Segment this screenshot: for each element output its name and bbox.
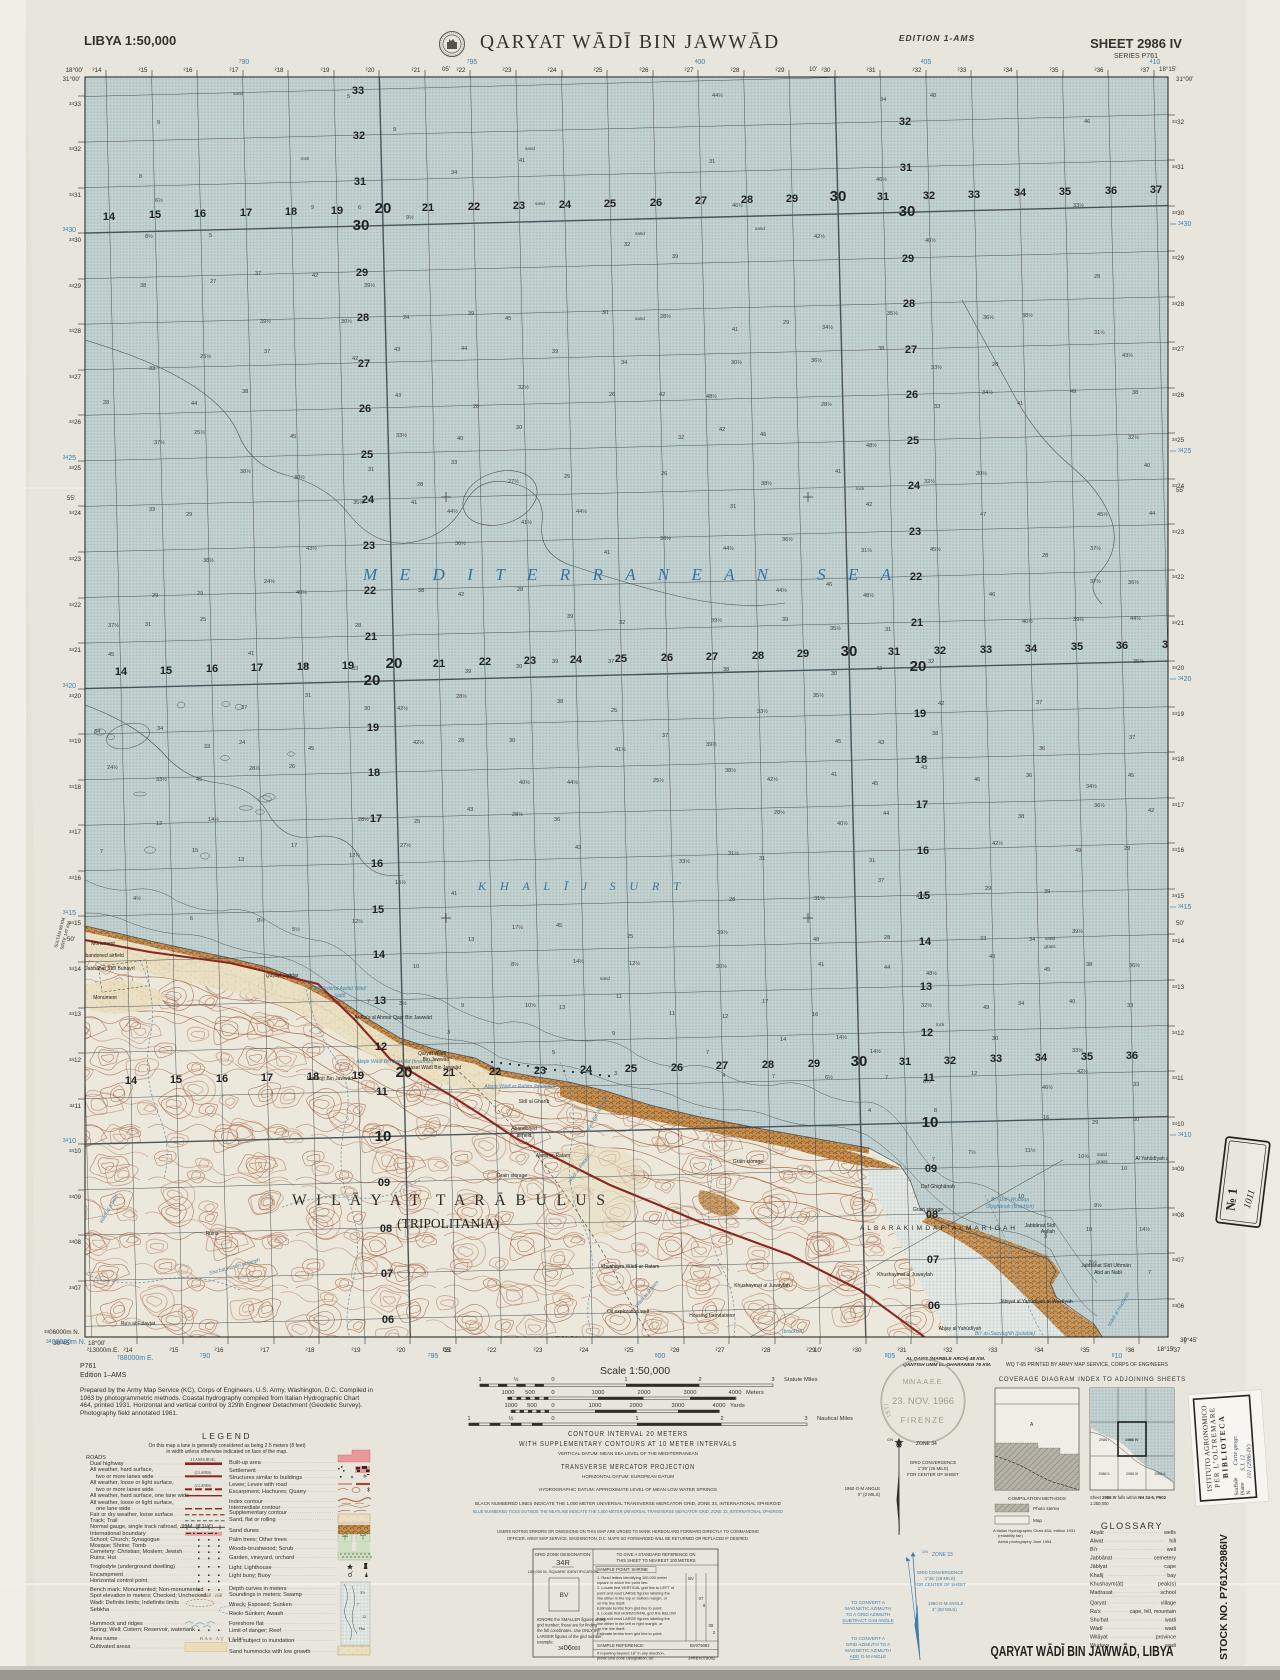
svg-text:sand: sand <box>755 226 765 231</box>
svg-text:30: 30 <box>831 671 837 677</box>
svg-text:34: 34 <box>1018 1001 1024 1007</box>
svg-text:25: 25 <box>604 198 616 210</box>
svg-text:48½: 48½ <box>866 442 877 449</box>
svg-text:MiN A.A.E.E.: MiN A.A.E.E. <box>903 1379 944 1386</box>
svg-text:23: 23 <box>524 655 536 667</box>
svg-text:20: 20 <box>910 658 927 675</box>
svg-text:42½: 42½ <box>397 705 408 712</box>
svg-text:grass: grass <box>1096 1159 1108 1164</box>
svg-text:12½: 12½ <box>352 918 363 925</box>
svg-text:31½: 31½ <box>861 547 872 554</box>
svg-text:3000: 3000 <box>684 1390 697 1396</box>
svg-text:ZONE 34: ZONE 34 <box>916 1441 937 1447</box>
svg-text:3½: 3½ <box>360 1590 365 1595</box>
svg-text:Grain storage: Grain storage <box>733 1159 764 1165</box>
svg-text:13: 13 <box>468 937 474 943</box>
svg-text:34: 34 <box>621 360 627 366</box>
svg-text:Sebkha: Sebkha <box>90 1607 110 1613</box>
svg-text:24: 24 <box>362 494 375 506</box>
svg-text:²19: ²19 <box>321 67 331 74</box>
svg-text:30½: 30½ <box>716 963 727 970</box>
svg-text:1000: 1000 <box>502 1390 515 1396</box>
svg-text:33: 33 <box>990 1053 1002 1065</box>
svg-text:31: 31 <box>900 162 912 174</box>
svg-text:2986 II: 2986 II <box>1099 1472 1110 1476</box>
svg-text:Settlement: Settlement <box>229 1468 256 1474</box>
svg-text:²23: ²23 <box>534 1347 544 1354</box>
svg-text:26: 26 <box>661 652 673 664</box>
svg-text:Limit of danger; Reef: Limit of danger; Reef <box>229 1628 281 1634</box>
svg-text:28½: 28½ <box>821 401 832 408</box>
svg-text:Photo stereo: Photo stereo <box>1033 1506 1059 1511</box>
svg-text:Statute Miles: Statute Miles <box>784 1377 818 1383</box>
svg-text:38½: 38½ <box>203 557 214 564</box>
svg-text:41: 41 <box>604 550 610 556</box>
svg-text:²18: ²18 <box>275 67 285 74</box>
svg-text:35: 35 <box>1059 186 1071 198</box>
svg-text:2000: 2000 <box>638 1390 651 1396</box>
svg-text:41: 41 <box>732 327 738 333</box>
svg-text:08: 08 <box>380 1223 392 1235</box>
svg-text:Ar Ra’s al Ahmar Qaşr Bin Jaww: Ar Ra’s al Ahmar Qaşr Bin Jawwād <box>354 1015 432 1021</box>
svg-text:GN: GN <box>887 1437 893 1442</box>
svg-text:3406000m N.: 3406000m N. <box>44 1329 80 1337</box>
svg-text:²25: ²25 <box>594 67 604 74</box>
svg-text:24½: 24½ <box>107 764 118 771</box>
svg-text:31½: 31½ <box>728 850 739 857</box>
svg-text:31: 31 <box>877 191 889 203</box>
svg-text:33: 33 <box>980 644 992 656</box>
svg-text:38: 38 <box>878 346 884 352</box>
svg-text:18°15': 18°15' <box>1157 1346 1174 1353</box>
svg-text:6: 6 <box>358 205 361 211</box>
svg-text:34: 34 <box>1025 643 1038 655</box>
svg-text:GRID CONVERGENCE: GRID CONVERGENCE <box>910 1460 957 1465</box>
svg-text:25: 25 <box>414 819 420 825</box>
svg-text:Jāblyat: Jāblyat <box>1090 1564 1108 1570</box>
svg-text:TO A GRID AZIMUTH: TO A GRID AZIMUTH <box>846 1612 890 1617</box>
svg-text:1000: 1000 <box>589 1403 602 1409</box>
svg-text:55': 55' <box>1176 487 1184 494</box>
svg-text:34: 34 <box>451 170 457 176</box>
svg-text:25½: 25½ <box>653 777 664 784</box>
svg-text:25½: 25½ <box>200 353 211 360</box>
svg-text:rock: rock <box>301 156 310 161</box>
svg-text:42: 42 <box>719 427 725 433</box>
svg-text:40½: 40½ <box>925 237 936 244</box>
svg-text:7: 7 <box>706 1050 709 1056</box>
svg-text:Spot elevation in meters; Chec: Spot elevation in meters; Checked; Unche… <box>90 1593 206 1599</box>
svg-text:37: 37 <box>1150 184 1162 196</box>
svg-text:8½: 8½ <box>145 233 153 240</box>
svg-text:Abqār Wādī ar Rahīm (brackish): Abqār Wādī ar Rahīm (brackish) <box>483 1084 555 1090</box>
svg-text:GN: GN <box>922 1549 928 1554</box>
svg-text:46: 46 <box>760 432 766 438</box>
svg-text:36½: 36½ <box>811 357 822 364</box>
svg-text:19: 19 <box>331 205 343 217</box>
svg-text:Horizontal control point: Horizontal control point <box>90 1578 148 1584</box>
svg-text:05': 05' <box>442 66 450 73</box>
svg-text:GRID ZONE DESIGNATION:: GRID ZONE DESIGNATION: <box>535 1552 592 1557</box>
svg-text:6½: 6½ <box>155 197 163 204</box>
svg-text:W I L Ā Y A T T A R Ā B U L U: W I L Ā Y A T T A R Ā B U L U S <box>292 1192 605 1209</box>
svg-text:0° (0 MILS): 0° (0 MILS) <box>858 1492 881 1497</box>
svg-text:26: 26 <box>609 392 615 398</box>
svg-text:(salt): (salt) <box>334 993 345 999</box>
svg-text:05': 05' <box>443 1347 451 1354</box>
svg-text:37: 37 <box>241 705 247 711</box>
svg-text:5: 5 <box>209 233 212 239</box>
svg-text:11: 11 <box>616 994 622 1000</box>
svg-text:09: 09 <box>925 1163 937 1175</box>
svg-text:FOR CENTER OF SHEET: FOR CENTER OF SHEET <box>914 1582 966 1587</box>
svg-text:48: 48 <box>930 93 936 99</box>
svg-text:30: 30 <box>516 664 522 670</box>
svg-text:30: 30 <box>841 643 858 660</box>
svg-text:8½: 8½ <box>511 961 519 968</box>
svg-text:25½: 25½ <box>194 429 205 436</box>
svg-text:15: 15 <box>149 209 161 221</box>
svg-text:27: 27 <box>905 344 917 356</box>
svg-text:Nautical Miles: Nautical Miles <box>817 1416 853 1422</box>
svg-text:²35: ²35 <box>1081 1347 1091 1354</box>
svg-text:Qaryat: Qaryat <box>1090 1600 1107 1606</box>
svg-text:101 (2986-IV): 101 (2986-IV) <box>1246 1444 1254 1478</box>
svg-text:37: 37 <box>878 878 884 884</box>
svg-text:33: 33 <box>149 366 155 372</box>
svg-text:30½: 30½ <box>976 470 987 477</box>
svg-text:31°00': 31°00' <box>63 76 80 83</box>
svg-text:9: 9 <box>311 205 314 211</box>
svg-text:31: 31 <box>354 176 366 188</box>
svg-text:23: 23 <box>363 540 375 552</box>
svg-text:FOR CENTER OF SHEET: FOR CENTER OF SHEET <box>907 1472 959 1477</box>
svg-text:33: 33 <box>451 460 457 466</box>
svg-text:10½: 10½ <box>525 1002 536 1009</box>
svg-text:45½: 45½ <box>930 546 941 553</box>
svg-text:24½: 24½ <box>264 578 275 585</box>
svg-text:43½: 43½ <box>1122 352 1133 359</box>
svg-text:41: 41 <box>519 158 525 164</box>
svg-text:33: 33 <box>352 85 364 97</box>
svg-text:24: 24 <box>570 654 583 666</box>
svg-text:42½: 42½ <box>814 233 825 240</box>
svg-text:16: 16 <box>206 663 218 675</box>
svg-text:28: 28 <box>417 482 423 488</box>
svg-text:²31: ²31 <box>898 1347 908 1354</box>
svg-text:²28: ²28 <box>731 67 741 74</box>
svg-text:39½: 39½ <box>717 929 728 936</box>
svg-text:46: 46 <box>974 777 980 783</box>
svg-text:SHEET 2986 IV: SHEET 2986 IV <box>1090 36 1182 51</box>
svg-text:7: 7 <box>100 849 103 855</box>
svg-text:42: 42 <box>866 502 872 508</box>
svg-text:37½: 37½ <box>1090 578 1101 585</box>
svg-text:26: 26 <box>359 403 371 415</box>
svg-text:28½: 28½ <box>249 765 260 772</box>
svg-text:36: 36 <box>1026 773 1032 779</box>
svg-text:39: 39 <box>552 659 558 665</box>
svg-text:TO GIVE A STANDARD REFERENCE O: TO GIVE A STANDARD REFERENCE ON <box>617 1552 696 1557</box>
svg-text:32: 32 <box>353 130 365 142</box>
svg-text:18°00': 18°00' <box>66 67 83 74</box>
svg-text:14½: 14½ <box>836 1034 847 1041</box>
svg-text:example:: example: <box>537 1639 554 1644</box>
svg-text:16: 16 <box>194 208 206 220</box>
svg-text:07: 07 <box>381 1268 393 1280</box>
svg-text:0: 0 <box>551 1416 554 1422</box>
svg-text:28: 28 <box>884 935 890 941</box>
svg-text:44½: 44½ <box>723 545 734 552</box>
svg-text:11: 11 <box>669 1011 675 1017</box>
svg-text:sand: sand <box>635 231 645 236</box>
svg-text:41: 41 <box>411 500 417 506</box>
svg-text:31: 31 <box>145 622 151 628</box>
svg-text:44: 44 <box>1149 511 1155 517</box>
svg-text:½: ½ <box>514 1376 519 1383</box>
svg-text:wells: wells <box>1163 1530 1176 1536</box>
svg-text:Abd an Nabī: Abd an Nabī <box>1094 1270 1122 1276</box>
svg-text:28: 28 <box>355 623 361 629</box>
svg-text:464, printed 1931. Horizontal: 464, printed 1931. Horizontal and vertic… <box>80 1402 363 1409</box>
svg-text:BV: BV <box>688 1576 694 1581</box>
svg-text:Monument: Monument <box>93 995 117 1001</box>
svg-text:Palm trees; Other trees: Palm trees; Other trees <box>229 1537 287 1543</box>
svg-text:42½: 42½ <box>413 739 424 746</box>
svg-text:BV079082: BV079082 <box>690 1643 710 1648</box>
svg-text:36½: 36½ <box>1128 579 1139 586</box>
svg-text:²26: ²26 <box>640 67 650 74</box>
svg-text:06: 06 <box>928 1300 940 1312</box>
svg-text:5: 5 <box>347 94 350 100</box>
svg-text:Foreshore flat: Foreshore flat <box>229 1621 264 1627</box>
svg-text:31: 31 <box>730 504 736 510</box>
svg-text:Hut: Hut <box>359 1626 366 1631</box>
svg-text:9: 9 <box>393 127 396 133</box>
svg-text:3: 3 <box>771 1377 774 1383</box>
svg-text:30: 30 <box>899 203 916 220</box>
svg-text:8: 8 <box>139 174 142 180</box>
svg-text:34½: 34½ <box>1086 783 1097 790</box>
svg-text:43: 43 <box>394 347 400 353</box>
svg-text:2986 III: 2986 III <box>1126 1472 1138 1476</box>
svg-text:35: 35 <box>1081 1051 1093 1063</box>
svg-text:ADD G-M ANGLE: ADD G-M ANGLE <box>850 1654 887 1659</box>
svg-text:in width unless otherwise indi: in width unless otherwise indicated on f… <box>166 1449 287 1455</box>
svg-text:25: 25 <box>611 708 617 714</box>
svg-text:7½: 7½ <box>968 1149 976 1156</box>
svg-text:19: 19 <box>352 1070 364 1082</box>
svg-text:Khushaym(āt): Khushaym(āt) <box>1090 1581 1124 1587</box>
svg-text:49: 49 <box>983 1005 989 1011</box>
svg-text:31: 31 <box>899 1056 911 1068</box>
svg-text:28½: 28½ <box>456 693 467 700</box>
svg-text:Khalīj: Khalīj <box>1090 1573 1104 1579</box>
svg-text:46: 46 <box>989 592 995 598</box>
svg-text:Woods-brushwood; Scrub: Woods-brushwood; Scrub <box>229 1546 293 1552</box>
svg-text:well: well <box>1166 1547 1176 1553</box>
svg-text:32: 32 <box>923 190 935 202</box>
svg-text:29: 29 <box>186 512 192 518</box>
svg-text:28½: 28½ <box>358 816 369 823</box>
svg-text:²22: ²22 <box>488 1347 498 1354</box>
svg-text:42½: 42½ <box>992 840 1003 847</box>
svg-text:08: 08 <box>709 1623 714 1628</box>
svg-text:1°36' (28 MILS): 1°36' (28 MILS) <box>925 1576 956 1581</box>
svg-text:Yards: Yards <box>730 1403 745 1409</box>
svg-text:TO CONVERT A: TO CONVERT A <box>851 1600 886 1605</box>
svg-text:44½: 44½ <box>576 508 587 515</box>
svg-text:1: 1 <box>635 1416 638 1422</box>
svg-text:26: 26 <box>289 764 295 770</box>
svg-text:09: 09 <box>378 1177 390 1189</box>
svg-text:33½: 33½ <box>156 776 167 783</box>
svg-text:45: 45 <box>872 781 878 787</box>
svg-text:Sand, flat or rolling: Sand, flat or rolling <box>229 1517 276 1523</box>
svg-text:40: 40 <box>1144 463 1150 469</box>
svg-text:35: 35 <box>1071 641 1083 653</box>
svg-text:Structures similar to building: Structures similar to buildings <box>229 1475 302 1481</box>
svg-text:²30: ²30 <box>822 67 832 74</box>
svg-text:14½: 14½ <box>573 958 584 965</box>
svg-text:28: 28 <box>517 587 523 593</box>
svg-text:24: 24 <box>559 199 572 211</box>
svg-text:41: 41 <box>248 651 254 657</box>
svg-text:STOCK NO. P761X2986IV: STOCK NO. P761X2986IV <box>1218 1534 1230 1660</box>
svg-text:sand: sand <box>1097 1152 1107 1157</box>
svg-text:sand: sand <box>600 976 610 981</box>
svg-text:16: 16 <box>812 1012 818 1018</box>
svg-text:²34: ²34 <box>1035 1347 1045 1354</box>
svg-text:32: 32 <box>619 620 625 626</box>
svg-text:Aerial photography June 1954.: Aerial photography June 1954. <box>998 1539 1052 1544</box>
svg-text:12½: 12½ <box>349 852 360 859</box>
svg-text:Quşayr Juddar: Quşayr Juddar <box>266 973 299 979</box>
svg-text:9½: 9½ <box>406 214 414 221</box>
svg-text:Madrasat: Madrasat <box>1090 1590 1113 1596</box>
svg-text:9: 9 <box>461 1003 464 1009</box>
svg-text:Bi’r as-Sauvaghīh (potable): Bi’r as-Sauvaghīh (potable) <box>975 1331 1036 1337</box>
svg-text:10: 10 <box>413 964 419 970</box>
svg-text:1: 1 <box>467 1416 470 1422</box>
svg-text:39½: 39½ <box>706 741 717 748</box>
svg-text:46: 46 <box>1084 119 1090 125</box>
svg-text:10': 10' <box>809 66 817 73</box>
svg-text:Photography field annotated 19: Photography field annotated 1961. <box>80 1410 178 1417</box>
svg-text:07: 07 <box>699 1596 704 1601</box>
svg-text:38: 38 <box>932 731 938 737</box>
svg-text:WITH SUPPLEMENTARY CONTOURS AT: WITH SUPPLEMENTARY CONTOURS AT 10 METER … <box>519 1441 737 1448</box>
svg-text:²16: ²16 <box>184 67 194 74</box>
svg-text:23: 23 <box>534 1065 546 1077</box>
svg-text:39½: 39½ <box>1072 928 1083 935</box>
svg-text:14: 14 <box>919 936 932 948</box>
svg-text:9½: 9½ <box>1094 1202 1102 1209</box>
svg-text:41½: 41½ <box>615 746 626 753</box>
svg-text:38: 38 <box>1086 962 1092 968</box>
svg-text:22: 22 <box>468 201 480 213</box>
svg-text:27: 27 <box>210 279 216 285</box>
svg-text:sand: sand <box>535 201 545 206</box>
svg-text:10: 10 <box>375 1128 392 1145</box>
svg-text:17: 17 <box>240 207 252 219</box>
svg-text:²32: ²32 <box>944 1347 954 1354</box>
svg-text:sand: sand <box>1045 936 1055 941</box>
svg-text:school: school <box>1160 1590 1176 1596</box>
svg-text:38½: 38½ <box>1022 312 1033 319</box>
svg-text:Ghighānah (brackish): Ghighānah (brackish) <box>986 1204 1034 1210</box>
svg-text:32: 32 <box>934 645 946 657</box>
svg-text:38: 38 <box>1018 814 1024 820</box>
svg-text:Sand dunes: Sand dunes <box>229 1528 259 1534</box>
svg-text:4000: 4000 <box>713 1403 726 1409</box>
svg-text:28: 28 <box>762 1059 774 1071</box>
svg-text:28: 28 <box>458 738 464 744</box>
svg-text:½: ½ <box>509 1415 514 1422</box>
svg-text:wadi: wadi <box>1164 1626 1176 1632</box>
svg-text:42: 42 <box>1148 808 1154 814</box>
svg-text:Land subject to inundation: Land subject to inundation <box>229 1638 294 1644</box>
svg-text:²15: ²15 <box>139 67 149 74</box>
svg-text:45: 45 <box>290 434 296 440</box>
svg-text:Sheet 2986 IV falls within: Sheet 2986 IV falls within NH 34-5, P502 <box>1090 1495 1167 1500</box>
svg-text:²16: ²16 <box>215 1347 225 1354</box>
svg-text:29: 29 <box>786 193 798 205</box>
svg-text:22: 22 <box>489 1066 501 1078</box>
svg-text:²15: ²15 <box>170 1347 180 1354</box>
svg-text:Khushaym Wādī ar Ratam: Khushaym Wādī ar Ratam <box>601 1264 660 1270</box>
svg-text:46½: 46½ <box>1042 1084 1053 1091</box>
svg-text:32: 32 <box>678 435 684 441</box>
svg-text:18: 18 <box>368 767 380 779</box>
svg-text:SUBTRACT G-M ANGLE: SUBTRACT G-M ANGLE <box>842 1618 893 1623</box>
svg-text:BLACK NUMBERED LINES INDICATE: BLACK NUMBERED LINES INDICATE THE 1,000 … <box>475 1501 782 1506</box>
svg-text:OFFICER, ARMY MAP SERVICE,: OFFICER, ARMY MAP SERVICE, WASHINGTON, D… <box>507 1536 749 1541</box>
svg-text:30: 30 <box>364 706 370 712</box>
svg-text:30: 30 <box>830 188 847 205</box>
svg-text:28: 28 <box>103 400 109 406</box>
svg-text:44½: 44½ <box>776 587 787 594</box>
svg-text:sand: sand <box>525 146 535 151</box>
svg-text:28: 28 <box>357 312 369 324</box>
svg-text:30: 30 <box>353 217 370 234</box>
svg-text:Khushaymat al Juwayfah: Khushaymat al Juwayfah <box>734 1283 790 1289</box>
svg-text:USERS NOTING ERRORS OR OMISSIO: USERS NOTING ERRORS OR OMISSIONS ON THIS… <box>497 1529 760 1534</box>
svg-text:4½: 4½ <box>133 895 141 902</box>
svg-text:QARYAT WĀDĪ BIN JAWWĀD, LIBYA: QARYAT WĀDĪ BIN JAWWĀD, LIBYA <box>991 1643 1174 1660</box>
svg-text:Wadi: Definite limits; Indefin: Wadi: Definite limits; Indefinite limits <box>90 1600 179 1606</box>
svg-text:Normal gauge, single track rai: Normal gauge, single track railroad, .95… <box>90 1523 213 1530</box>
svg-text:32½: 32½ <box>924 478 935 485</box>
svg-text:province: province <box>1156 1635 1176 1641</box>
svg-text:prefix Grid Zone Designation,: prefix Grid Zone Designation, as: <box>597 1656 654 1661</box>
svg-text:4000: 4000 <box>729 1390 742 1396</box>
svg-text:Ra’s al Fulayţat: Ra’s al Fulayţat <box>121 1321 156 1327</box>
svg-text:29: 29 <box>808 1058 820 1070</box>
svg-text:35½: 35½ <box>830 625 841 632</box>
svg-text:39: 39 <box>468 311 474 317</box>
svg-text:36½: 36½ <box>1129 962 1140 969</box>
svg-text:²24: ²24 <box>580 1347 590 1354</box>
svg-text:26: 26 <box>650 197 662 209</box>
svg-text:²29: ²29 <box>776 67 786 74</box>
svg-text:17: 17 <box>916 799 928 811</box>
svg-text:49: 49 <box>1070 389 1076 395</box>
svg-text:38: 38 <box>242 389 248 395</box>
svg-text:28½: 28½ <box>774 809 785 816</box>
svg-text:Grain storage: Grain storage <box>913 1207 944 1213</box>
svg-text:4: 4 <box>868 1108 871 1114</box>
